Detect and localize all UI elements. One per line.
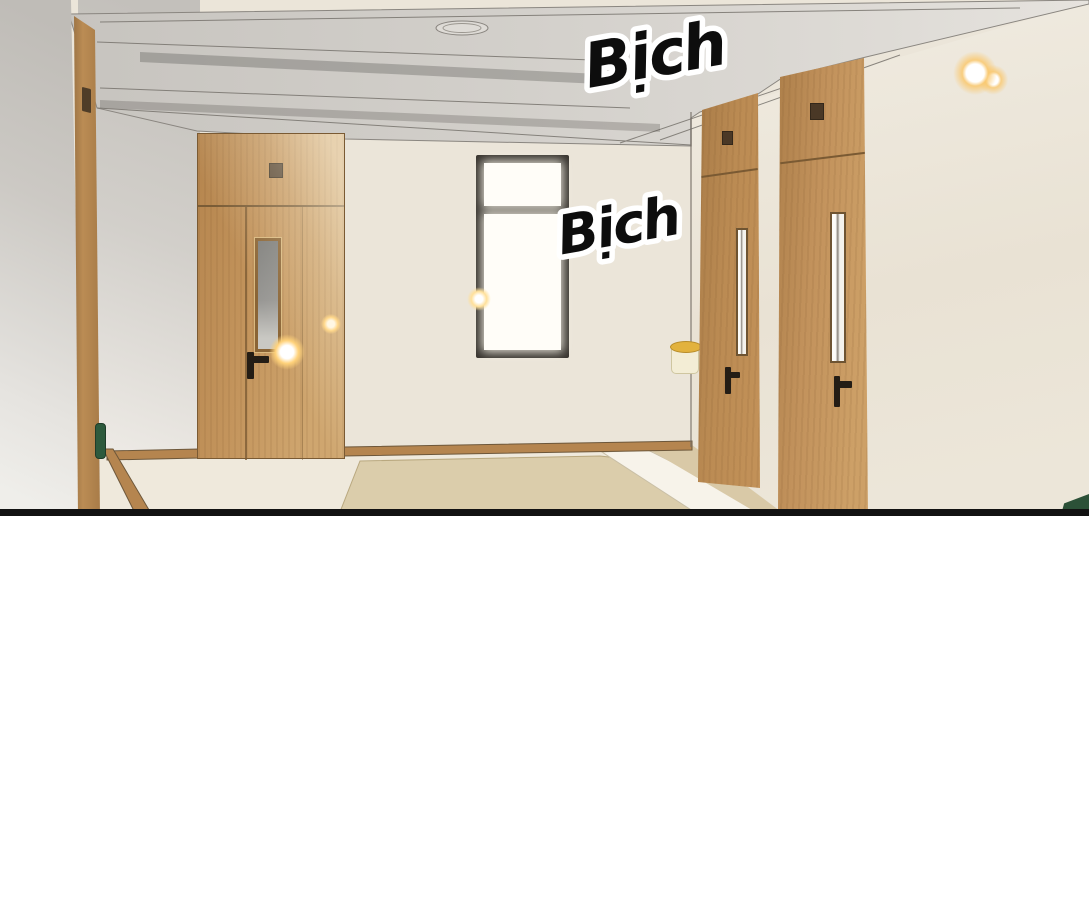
sfx-top-text: Bịch <box>578 6 730 102</box>
lens-flare-window <box>467 287 491 311</box>
wall-corner-line <box>690 112 692 447</box>
right-door-near <box>778 52 868 516</box>
sfx-middle-text: Bịch <box>552 184 683 267</box>
handle-lever <box>728 372 740 378</box>
blank-gutter <box>0 516 1089 900</box>
wall-lamp <box>671 344 699 374</box>
right-door-far-glass-slit <box>736 228 748 356</box>
lamp-gold-rim <box>670 341 702 353</box>
right-door-near-handle <box>833 376 852 407</box>
panel-border-line <box>0 509 1089 516</box>
wall-light-glow <box>950 50 1010 98</box>
right-door-near-plate <box>810 103 824 120</box>
wood-grain <box>698 90 760 492</box>
comic-page: Bịch Bịch <box>0 0 1089 900</box>
lens-flare-large <box>269 334 305 370</box>
sfx-top-container: Bịch <box>570 0 740 112</box>
right-door-far-plate <box>722 131 733 145</box>
comic-panel: Bịch Bịch <box>0 0 1089 516</box>
green-sign <box>95 423 106 459</box>
left-edge-door-plate <box>82 87 91 113</box>
sfx-middle-container: Bịch <box>545 178 695 274</box>
baseboard-left-segment <box>107 449 199 460</box>
right-door-near-glass-slit <box>830 212 846 363</box>
right-door-far <box>698 90 760 492</box>
wood-grain <box>778 52 868 516</box>
handle-lever <box>837 381 852 388</box>
lens-flare-small <box>321 314 341 334</box>
sunlight-sweep <box>198 134 344 458</box>
left-wooden-door <box>197 133 345 459</box>
right-door-far-handle <box>724 367 740 394</box>
